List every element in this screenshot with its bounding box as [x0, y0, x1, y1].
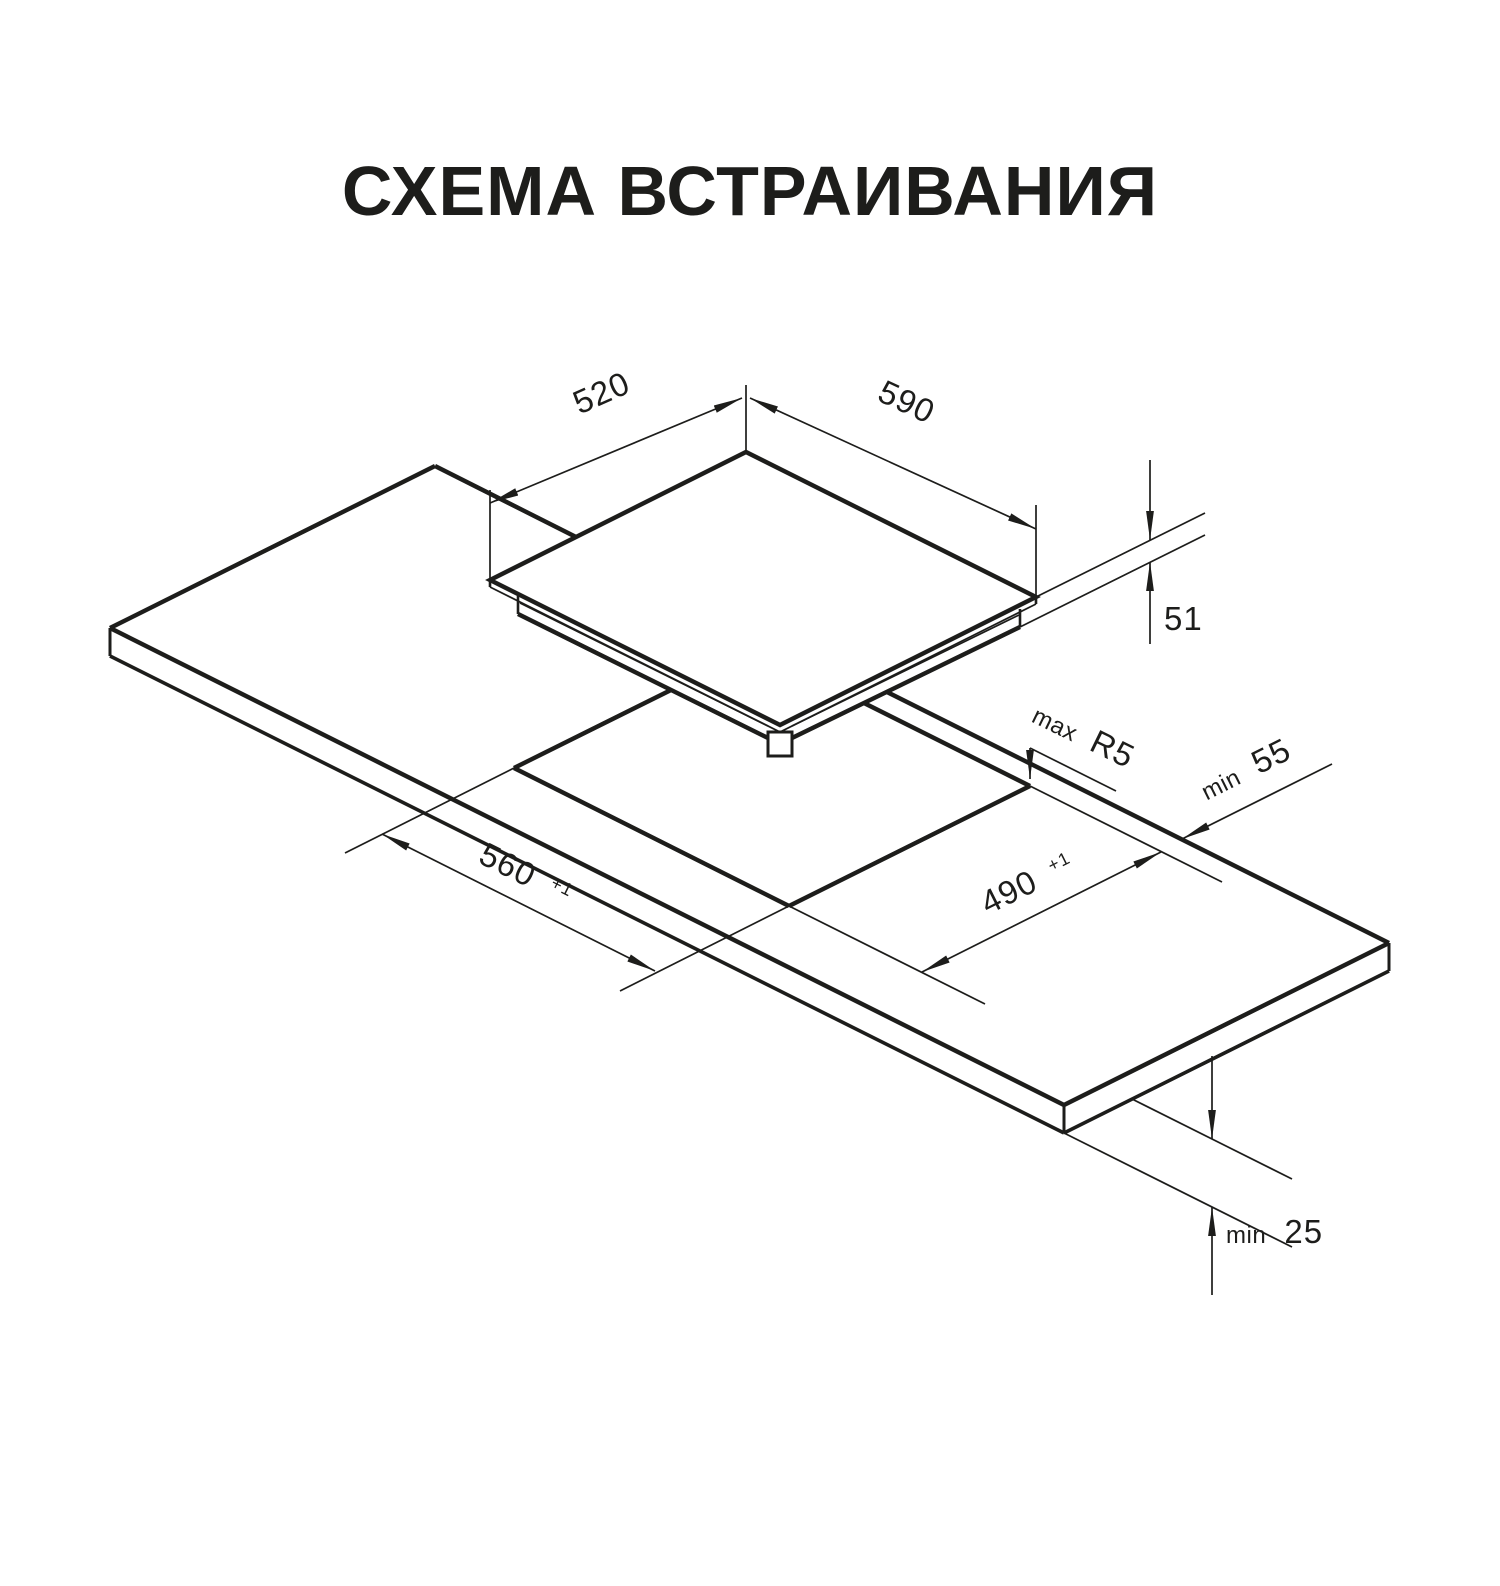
hob-casing-bottom-edge-left [518, 614, 768, 738]
dimension-worktop-thickness-min-25: min 25 [1064, 1056, 1323, 1295]
extension-line [1036, 513, 1205, 597]
countertop-front-bottom-edge [110, 656, 1064, 1133]
dimension-label-min-25: min 25 [1226, 1213, 1323, 1250]
dimension-line [490, 398, 742, 503]
dimension-line [750, 398, 1036, 529]
countertop-right-bottom-edge [1064, 971, 1389, 1133]
hob-glass-outline [490, 452, 1036, 725]
cutout-nw-edge [514, 690, 671, 768]
hob-casing-top-line-left [520, 603, 768, 726]
dimension-label-590: 590 [873, 373, 941, 431]
dimension-line [1182, 764, 1332, 839]
dimension-label-490: 490 +1 [974, 844, 1079, 921]
dimension-cutout-length-560: 560 +1 [345, 768, 789, 991]
hob-front-foot [768, 732, 792, 756]
extension-line [620, 906, 789, 991]
dimension-label-51: 51 [1164, 600, 1203, 637]
countertop-front-edge [110, 628, 1064, 1105]
dimension-cutout-depth-490: 490 +1 [789, 844, 1161, 1004]
callout-corner-radius-max-r5: max R5 [1027, 694, 1140, 791]
embedding-diagram: 520 590 51 max R5 [0, 0, 1500, 1586]
countertop-back-left-edge [110, 466, 435, 628]
countertop-right-edge [1064, 943, 1389, 1105]
dimension-hob-height-51: 51 [1020, 460, 1205, 644]
dimension-hob-width-590: 590 [750, 373, 1036, 597]
dimension-label-560: 560 +1 [474, 835, 579, 912]
installation-scheme-page: СХЕМА ВСТРАИВАНИЯ [0, 0, 1500, 1586]
hob [490, 452, 1036, 756]
dimension-label-min-55: min 55 [1193, 730, 1296, 806]
dimension-label-520: 520 [567, 364, 635, 421]
countertop [110, 466, 1389, 1133]
dimension-rear-clearance-min-55: min 55 [1030, 730, 1332, 882]
hob-casing-top-line-right [792, 615, 1019, 726]
hob-casing-bottom-edge-right [792, 627, 1020, 738]
callout-label-max-r5: max R5 [1027, 694, 1140, 775]
cutout-ne-edge [864, 703, 1030, 786]
